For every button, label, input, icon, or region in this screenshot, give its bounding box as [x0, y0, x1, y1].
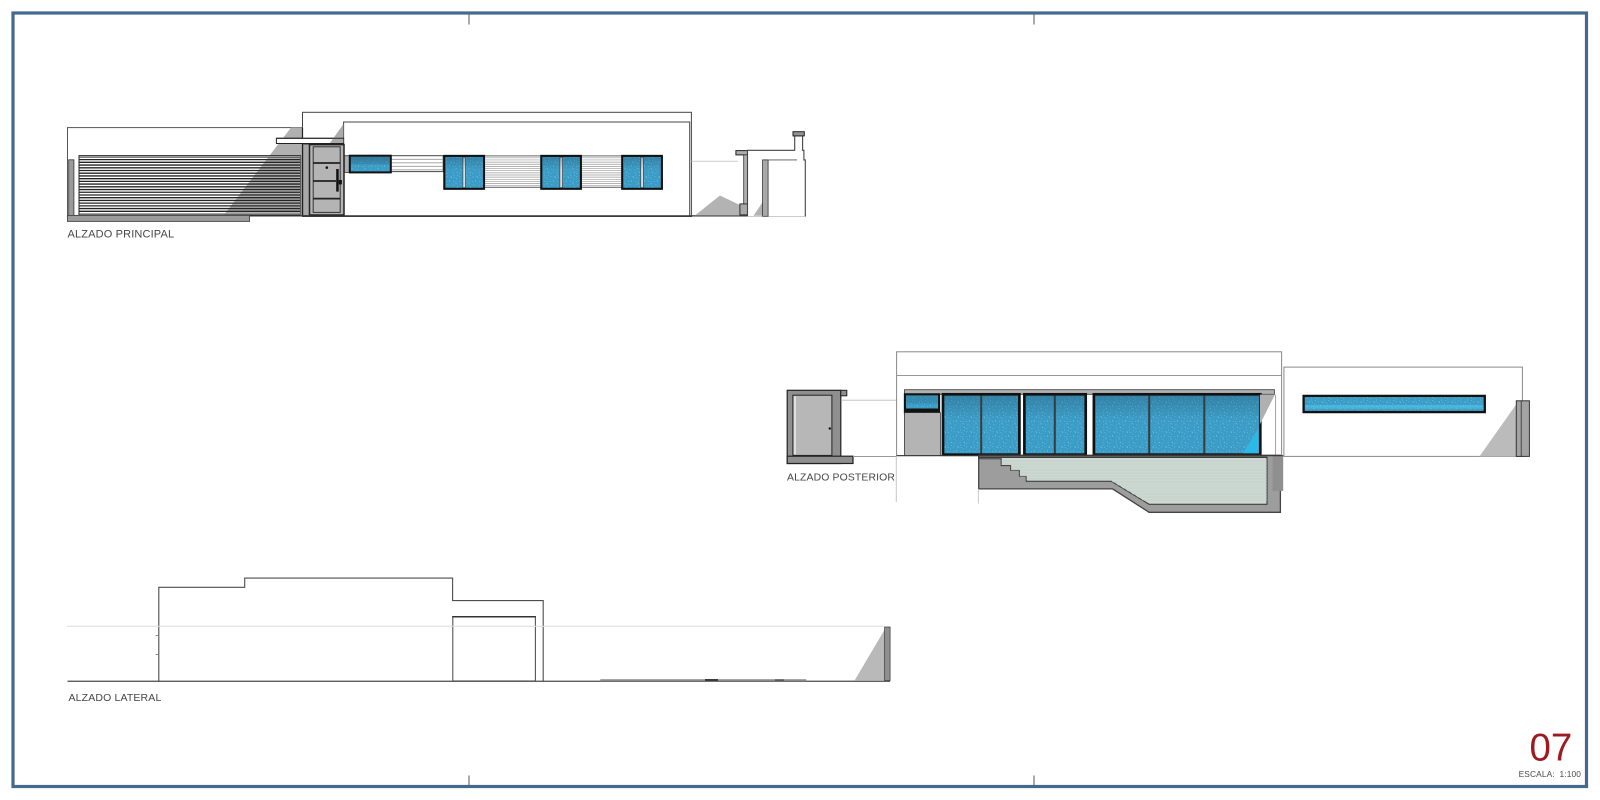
- svg-text:07: 07: [1530, 727, 1573, 770]
- svg-text:ALZADO LATERAL: ALZADO LATERAL: [69, 692, 162, 704]
- svg-text:ALZADO PRINCIPAL: ALZADO PRINCIPAL: [68, 229, 175, 241]
- svg-text:ALZADO POSTERIOR: ALZADO POSTERIOR: [787, 473, 895, 484]
- svg-text:ESCALA: 1:100: ESCALA: 1:100: [1519, 769, 1582, 779]
